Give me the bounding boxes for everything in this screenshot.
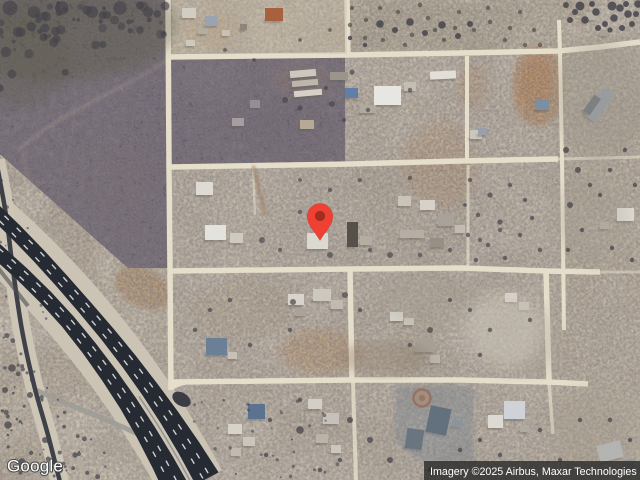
svg-text:Google: Google (7, 457, 63, 476)
svg-text:Imagery ©2025 Airbus, Maxar Te: Imagery ©2025 Airbus, Maxar Technologies (430, 466, 637, 478)
